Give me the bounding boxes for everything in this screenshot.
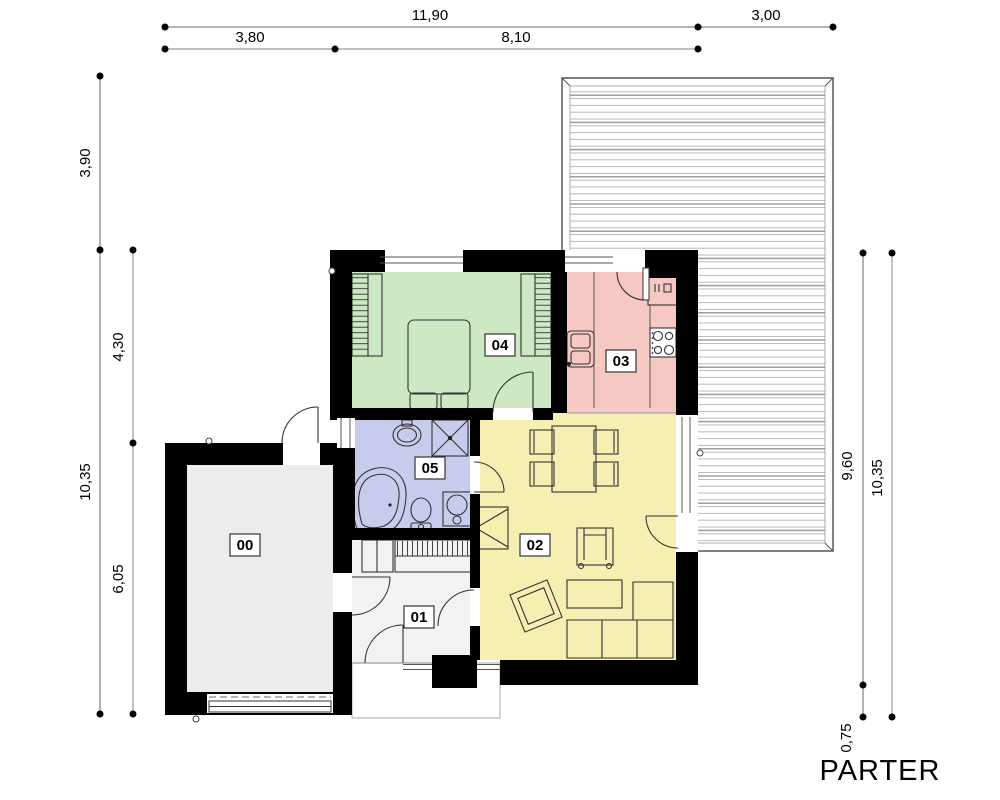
dim-left-terrace: 3,90 — [77, 148, 94, 177]
dim-left-garage: 6,05 — [110, 564, 127, 593]
dim-right-total: 10,35 — [869, 459, 886, 497]
dim-top-garage: 3,80 — [235, 29, 264, 46]
marker-downspout — [206, 438, 212, 444]
wall-east-lower — [676, 552, 698, 660]
marker-vent — [329, 268, 335, 274]
room-02-living-area — [480, 413, 676, 660]
room-label-00-text: 00 — [237, 537, 254, 554]
floor-plan-page: 00 01 02 03 04 05 11,90 3,00 3,80 8,10 3… — [0, 0, 1000, 800]
kitchen-stove — [650, 328, 676, 357]
garage-side-door — [282, 407, 320, 465]
room-label-00: 00 — [230, 534, 260, 556]
dim-left-total: 10,35 — [77, 463, 94, 501]
wall-kitchen-ne-corner — [645, 250, 698, 278]
wall-bathroom-south — [337, 528, 480, 540]
plan-title: PARTER — [820, 755, 941, 787]
kitchen-window — [565, 250, 613, 272]
marker-vent — [697, 450, 703, 456]
dim-top-terrace: 3,00 — [751, 7, 780, 24]
room-label-03: 03 — [606, 350, 636, 372]
room-label-01: 01 — [404, 606, 434, 628]
garage-door — [207, 694, 333, 713]
bathroom-window — [337, 418, 355, 448]
room-label-02-text: 02 — [527, 537, 544, 554]
wall-bedroom-kitchen — [551, 272, 567, 413]
wall-garage-west — [165, 443, 187, 715]
room-05-bathroom-area — [355, 420, 470, 528]
wall-entrance-pier — [432, 655, 477, 688]
room-label-02: 02 — [520, 534, 550, 556]
dim-top-total: 11,90 — [412, 7, 448, 24]
wall-living-south — [500, 660, 698, 685]
wall-bedroom-west — [330, 272, 352, 420]
wall-garage-north — [165, 443, 352, 465]
marker-downspout — [193, 716, 199, 722]
terrace-window — [676, 415, 698, 515]
room-label-05: 05 — [415, 457, 445, 479]
room-label-04: 04 — [485, 334, 515, 356]
room-label-05-text: 05 — [422, 460, 439, 477]
dim-right-house: 9,60 — [839, 451, 856, 480]
floor-plan-svg: 00 01 02 03 04 05 11,90 3,00 3,80 8,10 3… — [0, 0, 1000, 800]
room-label-01-text: 01 — [411, 609, 428, 626]
dim-top-house: 8,10 — [501, 29, 530, 46]
entrance-porch — [352, 663, 500, 718]
bedroom-window — [380, 250, 463, 272]
room-00-garage-area — [187, 465, 333, 692]
dim-left-wing: 4,30 — [110, 332, 127, 361]
room-label-03-text: 03 — [613, 353, 630, 370]
dim-right-step: 0,75 — [838, 723, 855, 752]
room-label-04-text: 04 — [492, 337, 509, 354]
